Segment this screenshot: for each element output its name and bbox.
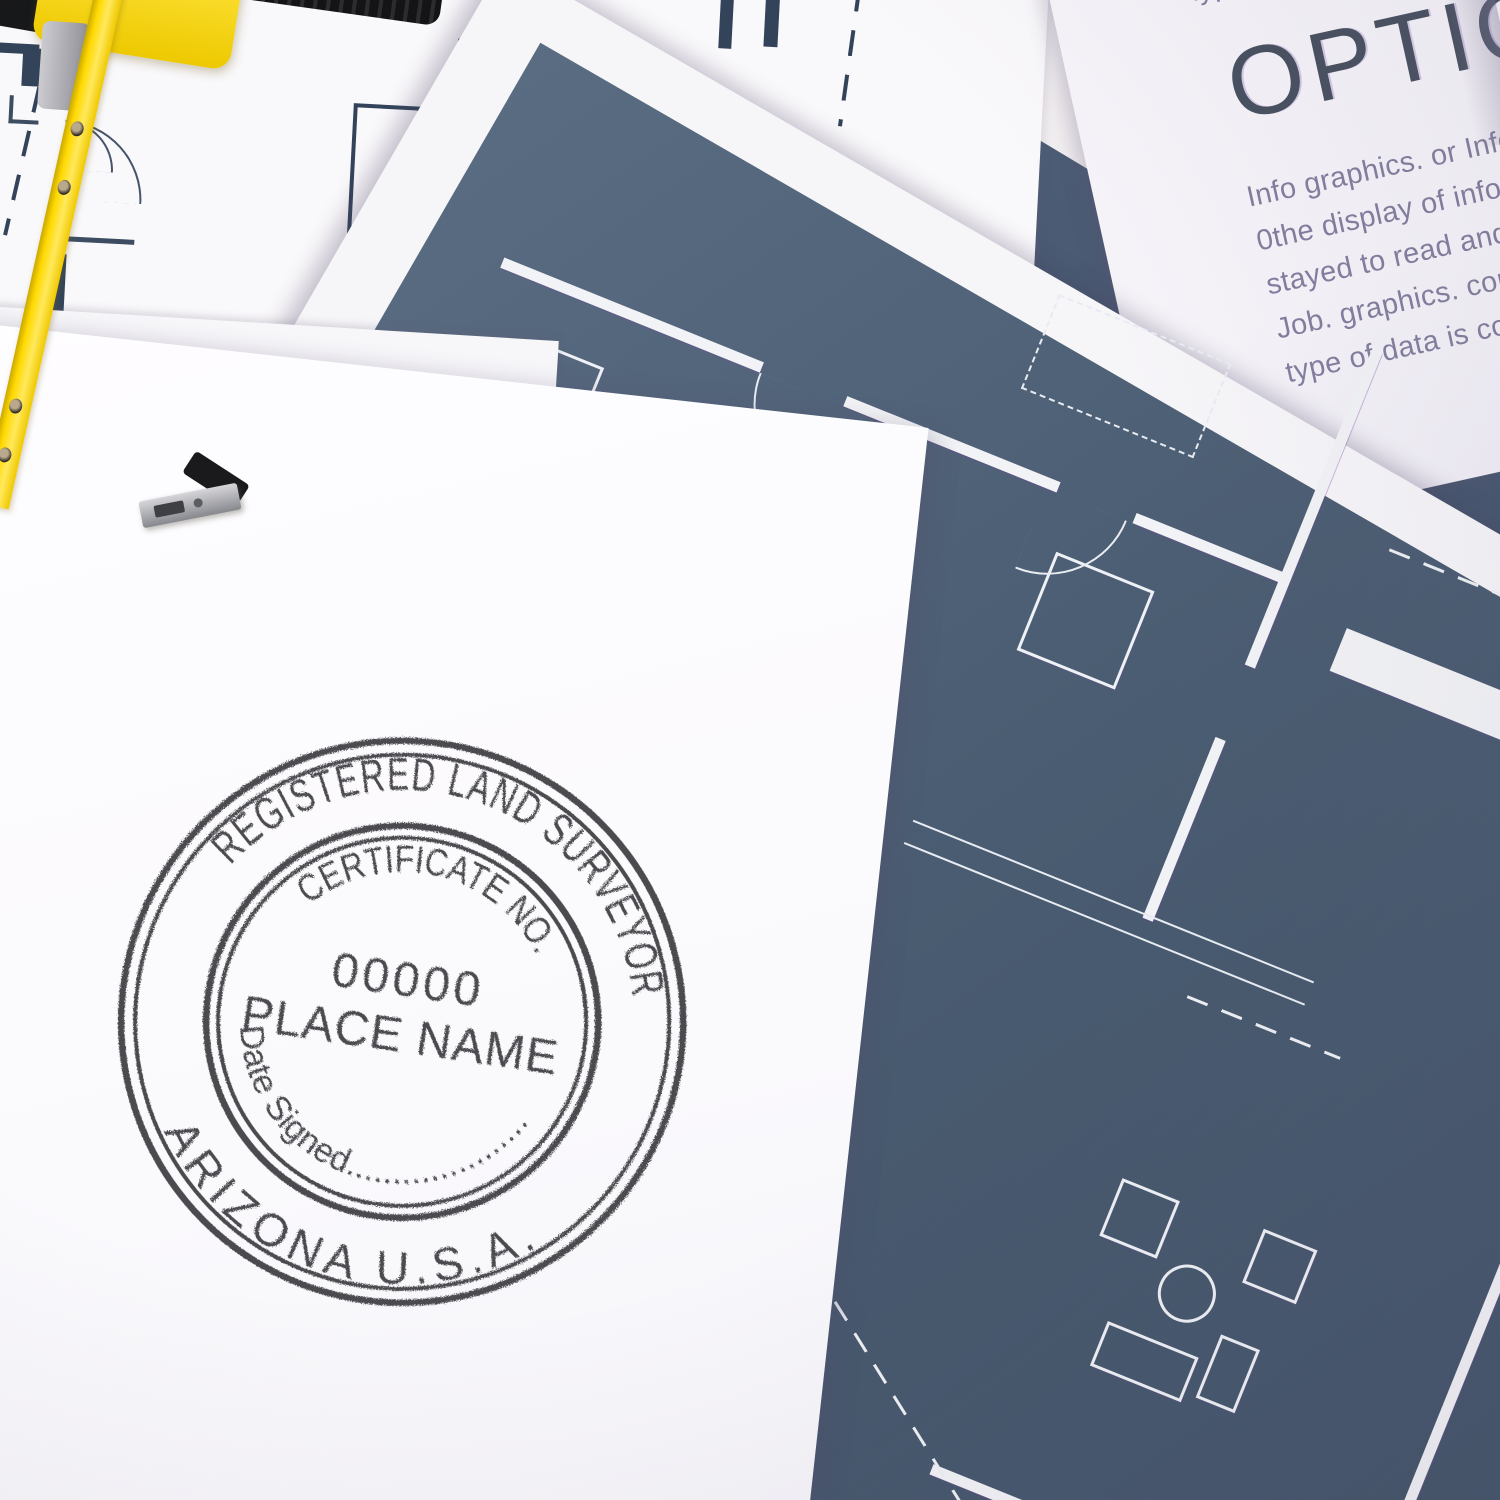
desk-photo: type of OPTIONS Info graphics. or Infor … (0, 0, 1500, 1500)
furniture-outline (1090, 1321, 1199, 1402)
hook-screw (193, 498, 204, 509)
floorplan-wall-line (62, 236, 134, 245)
furniture-outline (1196, 1334, 1260, 1413)
options-partial-line: type of (1186, 0, 1281, 9)
blade-rivet (8, 397, 24, 414)
dashed-line (1187, 995, 1341, 1060)
blade-rivet (56, 179, 72, 196)
blade-rivet (0, 446, 13, 463)
floorplan-dashed-line (838, 0, 862, 127)
blueprint-wall (1404, 1238, 1500, 1500)
wall-detail-lines (904, 820, 1314, 1006)
floorplan-wall (718, 0, 734, 49)
blueprint-wall (1245, 349, 1383, 668)
furniture-outline (1242, 1229, 1318, 1305)
floorplan-wall (763, 0, 780, 47)
hook-slot (153, 500, 185, 518)
blueprint-wall (1330, 628, 1500, 875)
blade-rivet (69, 120, 85, 137)
round-table (1149, 1256, 1225, 1332)
blueprint-wall (1133, 513, 1287, 584)
blueprint-wall (929, 1464, 1083, 1500)
stamped-paper-sheet: REGISTERED LAND SURVEYOR ARIZONA U.S.A. … (0, 310, 929, 1500)
furniture-outline (1099, 1178, 1180, 1259)
surveyor-stamp: REGISTERED LAND SURVEYOR ARIZONA U.S.A. … (73, 693, 731, 1351)
floorplan-wall-line (8, 119, 38, 125)
blueprint-wall (1142, 737, 1225, 922)
